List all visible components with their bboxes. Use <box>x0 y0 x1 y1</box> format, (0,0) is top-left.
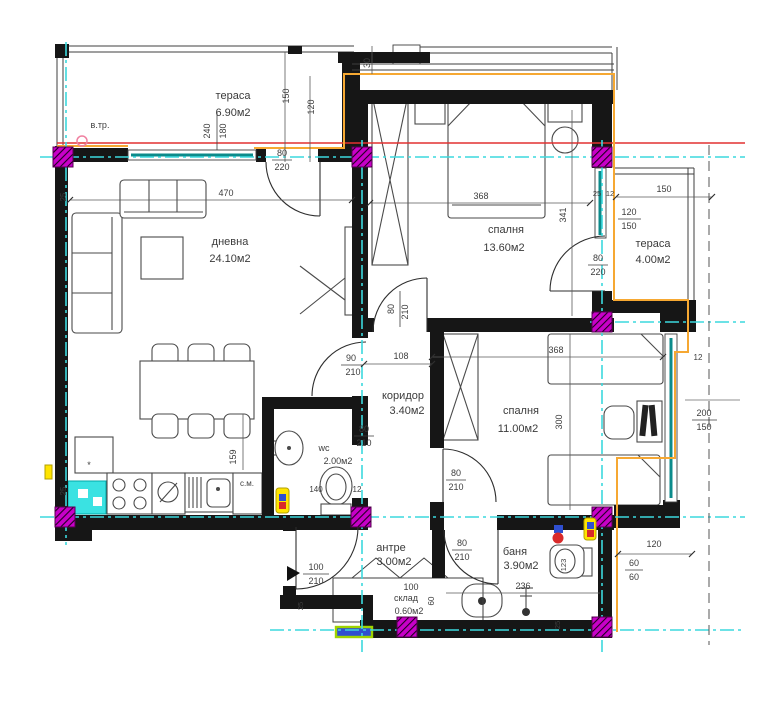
column <box>352 147 372 167</box>
door-size: 210 <box>400 304 410 319</box>
vent-shaft-label: в.тр. <box>91 120 110 130</box>
dishwasher <box>152 473 185 514</box>
room-name: тераса <box>636 238 672 250</box>
door-arc <box>296 527 358 589</box>
dimension: 159 <box>228 449 238 464</box>
window-size: 150 <box>696 422 711 432</box>
window-size: 60 <box>629 558 639 568</box>
room-area: 3.00м2 <box>376 556 411 568</box>
window-size: 180 <box>218 123 228 138</box>
door-size: 80 <box>593 253 603 263</box>
dimension: 123 <box>559 559 568 572</box>
room-area: 0.60м2 <box>395 606 424 616</box>
dimension: 12 <box>606 189 614 198</box>
door-size: 80 <box>386 304 396 314</box>
column <box>592 147 612 167</box>
dimension: 25 <box>296 602 305 610</box>
column <box>55 507 75 527</box>
vent-shaft-mark <box>77 136 87 146</box>
column <box>351 507 371 527</box>
toilet <box>320 467 352 505</box>
room-area: 4.00м2 <box>635 254 670 266</box>
dining-table <box>140 361 254 419</box>
door-size: 210 <box>454 552 469 562</box>
door-size: 220 <box>274 162 289 172</box>
column <box>53 147 73 167</box>
door-size: 210 <box>448 482 463 492</box>
column <box>592 617 612 637</box>
marker <box>45 465 52 479</box>
dimension: 60 <box>427 596 436 605</box>
window-size: 120 <box>621 207 636 217</box>
dimension: 25 <box>59 192 68 201</box>
room-area: 6.90м2 <box>215 107 250 119</box>
room-name: дневна <box>212 236 250 248</box>
dimension: 236 <box>515 581 530 591</box>
window-size: 200 <box>696 408 711 418</box>
door-arc <box>550 236 605 291</box>
door-size: 220 <box>590 267 605 277</box>
desk-chair <box>604 406 634 439</box>
dimension: 30 <box>362 58 372 68</box>
bedroom-top-furniture <box>372 95 582 265</box>
riser-marker <box>554 525 563 533</box>
bedroom-right-furniture <box>443 334 663 505</box>
chair <box>188 414 214 438</box>
door-size: 100 <box>308 562 323 572</box>
door-size: 210 <box>356 438 371 448</box>
chair <box>224 414 250 438</box>
dimension: 12 <box>694 353 703 362</box>
door-size: 210 <box>308 576 323 586</box>
double-bed <box>448 100 545 218</box>
room-area: 13.60м2 <box>483 242 524 254</box>
dimension: 150 <box>656 184 671 194</box>
column <box>592 312 612 332</box>
stove-mark: * <box>87 460 91 470</box>
door-size: 80 <box>359 424 369 434</box>
room-name: спалня <box>488 224 524 236</box>
dimension: 108 <box>393 351 408 361</box>
room-area: 11.00м2 <box>498 423 538 435</box>
room-name: wc <box>318 443 330 453</box>
dimension: 25 <box>59 486 68 495</box>
dimension: 120 <box>646 539 661 549</box>
door-size: 80 <box>457 538 467 548</box>
coffee-table <box>141 237 183 279</box>
dimension: 368 <box>473 191 488 201</box>
toilet-tank <box>321 504 351 515</box>
door-size: 80 <box>451 468 461 478</box>
dimension: 368 <box>548 345 563 355</box>
room-name: баня <box>503 546 527 558</box>
dimension: 120 <box>306 99 316 114</box>
dimension: 12 <box>353 485 362 494</box>
single-bed <box>548 455 660 505</box>
door-size: 90 <box>346 353 356 363</box>
floor-plan-page: * <box>0 0 776 702</box>
window-size: 60 <box>629 572 639 582</box>
room-name: коридор <box>382 390 424 402</box>
column <box>397 617 417 637</box>
room-area: 24.10м2 <box>209 253 250 265</box>
dimension: 25 <box>553 621 562 629</box>
door-arc <box>444 530 498 584</box>
dimension: 150 <box>281 88 291 103</box>
room-name: спалня <box>503 405 539 417</box>
floor-plan-drawing: * <box>0 0 776 702</box>
stool <box>552 127 578 153</box>
single-bed <box>548 334 663 384</box>
room-name: тераса <box>216 90 252 102</box>
dimension: 470 <box>218 188 233 198</box>
room-area: 3.40м2 <box>389 405 424 417</box>
window-size: 150 <box>621 221 636 231</box>
dimension: 25 <box>593 189 601 198</box>
kitchen: * <box>68 437 262 514</box>
dimension: 341 <box>558 207 568 222</box>
dimension: 300 <box>554 414 564 429</box>
washing-machine-label: с.м. <box>240 479 254 488</box>
entry-arrow-icon <box>287 566 300 581</box>
dimension: 100 <box>403 582 418 592</box>
window-size: 240 <box>202 123 212 138</box>
kitchen-cabinet <box>75 437 113 473</box>
chair <box>152 414 178 438</box>
room-name: склад <box>394 593 419 603</box>
window-marker-green <box>336 627 372 637</box>
room-area: 2.00м2 <box>324 456 353 466</box>
room-area: 3.90м2 <box>503 560 538 572</box>
door-size: 80 <box>277 148 287 158</box>
stove <box>107 473 152 514</box>
riser-marker <box>553 533 564 544</box>
dimension: 140 <box>309 485 323 494</box>
door-size: 210 <box>345 367 360 377</box>
room-name: антре <box>376 542 405 554</box>
sofa <box>72 213 122 333</box>
